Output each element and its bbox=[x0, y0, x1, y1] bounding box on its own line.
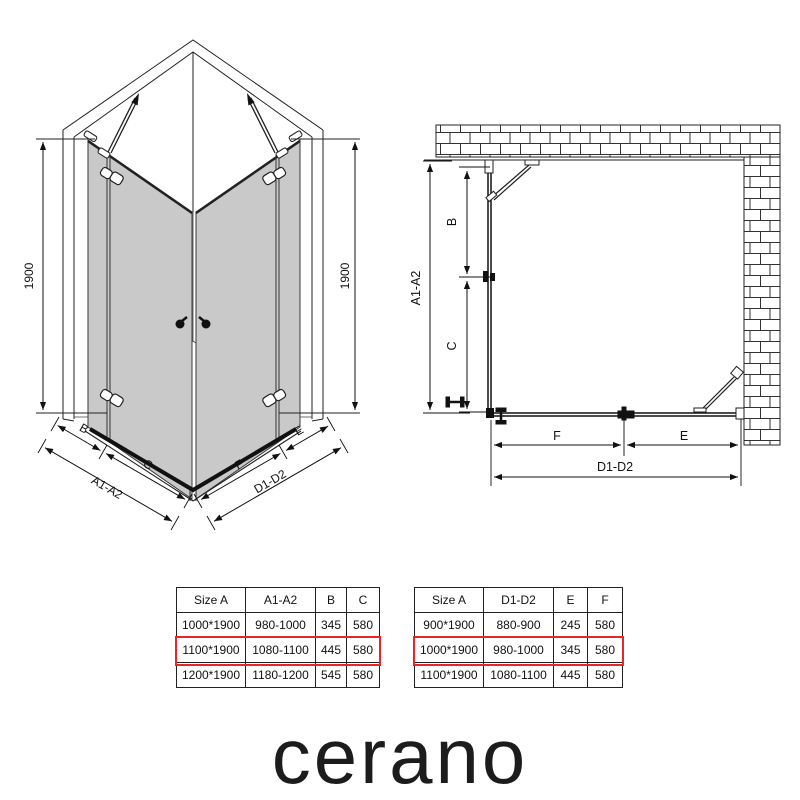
hinge-icon bbox=[483, 271, 495, 282]
dim-label-d1-d2: D1-D2 bbox=[251, 467, 288, 497]
size-table-a-wrap: Size A A1-A2 B C 1000*1900 980-1000 345 … bbox=[176, 587, 380, 688]
table-row-highlighted: 1000*1900 980-1000 345 580 bbox=[415, 638, 623, 663]
size-table-a: Size A A1-A2 B C 1000*1900 980-1000 345 … bbox=[176, 587, 380, 688]
table-row: 1200*1900 1180-1200 545 580 bbox=[177, 663, 380, 688]
plan-dim-label-f: F bbox=[553, 429, 561, 443]
col-header: A1-A2 bbox=[246, 588, 316, 613]
table-row: 900*1900 880-900 245 580 bbox=[415, 613, 623, 638]
col-header: Size A bbox=[415, 588, 484, 613]
dim-label-e: E bbox=[292, 422, 306, 438]
glass-panel-right bbox=[196, 140, 300, 499]
page: 1900 1900 B C A1-A2 F E D1-D2 bbox=[0, 0, 800, 800]
plan-dim-label-c: C bbox=[445, 341, 459, 350]
dim-label-1900-right: 1900 bbox=[338, 262, 352, 289]
support-bar-bottom bbox=[694, 366, 743, 413]
wall-profile-right bbox=[736, 408, 744, 419]
brand-logo: cerano bbox=[0, 706, 800, 800]
glass-bottom-plan bbox=[489, 413, 739, 416]
plan-view-diagram: A1-A2 B C F E D1-D2 bbox=[400, 90, 800, 500]
dim-label-b: B bbox=[77, 420, 91, 436]
table-row: 1000*1900 980-1000 345 580 bbox=[177, 613, 380, 638]
col-header: B bbox=[316, 588, 347, 613]
glass-panel-left bbox=[88, 140, 192, 499]
brick-wall-right bbox=[744, 157, 780, 445]
plan-dim-label-a1-a2: A1-A2 bbox=[409, 271, 423, 306]
table-header-row: Size A A1-A2 B C bbox=[177, 588, 380, 613]
plan-horizontal-dimensions bbox=[491, 419, 741, 486]
table-row: 1100*1900 1080-1100 445 580 bbox=[415, 663, 623, 688]
plan-dim-label-d1-d2: D1-D2 bbox=[597, 460, 633, 474]
col-header: C bbox=[347, 588, 380, 613]
wall-profile-top bbox=[485, 160, 493, 173]
table-row-highlighted: 1100*1900 1080-1100 445 580 bbox=[177, 638, 380, 663]
dim-label-1900-left: 1900 bbox=[22, 262, 36, 289]
corner-block bbox=[486, 408, 494, 418]
support-bar-top bbox=[486, 160, 539, 202]
plan-dim-label-b: B bbox=[445, 218, 459, 226]
table-header-row: Size A D1-D2 E F bbox=[415, 588, 623, 613]
isometric-shower-diagram: 1900 1900 B C A1-A2 F E D1-D2 bbox=[0, 0, 400, 560]
plan-dim-label-e: E bbox=[680, 429, 688, 443]
plan-vertical-dimensions bbox=[423, 161, 490, 413]
col-header: D1-D2 bbox=[484, 588, 554, 613]
col-header: Size A bbox=[177, 588, 246, 613]
dim-label-a1-a2: A1-A2 bbox=[89, 473, 125, 502]
col-header: E bbox=[554, 588, 588, 613]
brick-wall-top bbox=[436, 125, 780, 157]
size-table-d-wrap: Size A D1-D2 E F 900*1900 880-900 245 58… bbox=[414, 587, 623, 688]
hinge-icon bbox=[446, 397, 634, 424]
col-header: F bbox=[588, 588, 623, 613]
size-table-d: Size A D1-D2 E F 900*1900 880-900 245 58… bbox=[414, 587, 623, 688]
